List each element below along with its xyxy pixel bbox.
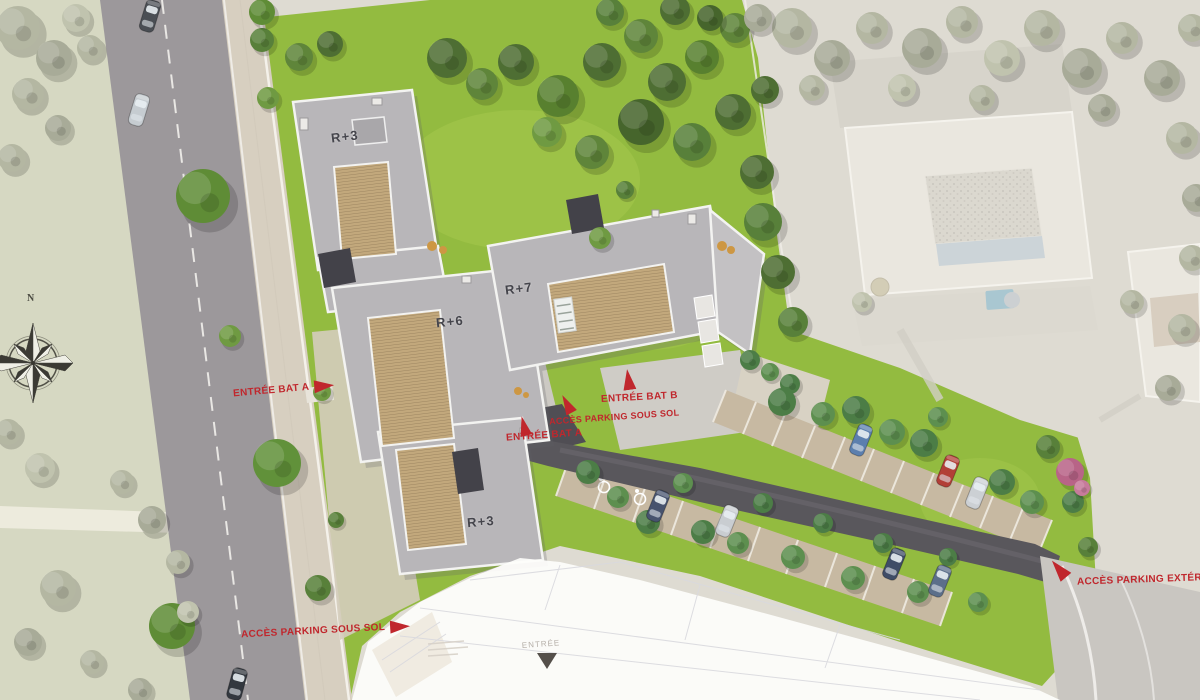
compass-north-label: N [27, 293, 34, 304]
label-level-bat-a-bottom: R+3 [466, 513, 495, 530]
site-plan-canvas: ENTRÉE [0, 0, 1200, 700]
site-plan: ENTRÉE N R+3 R+6 R+7 R+3 ENTRÉE BAT A EN… [0, 0, 1200, 700]
label-level-bat-a-mid: R+6 [435, 313, 464, 331]
arrow-right-icon [314, 379, 335, 394]
arrow-right-icon [390, 620, 411, 634]
